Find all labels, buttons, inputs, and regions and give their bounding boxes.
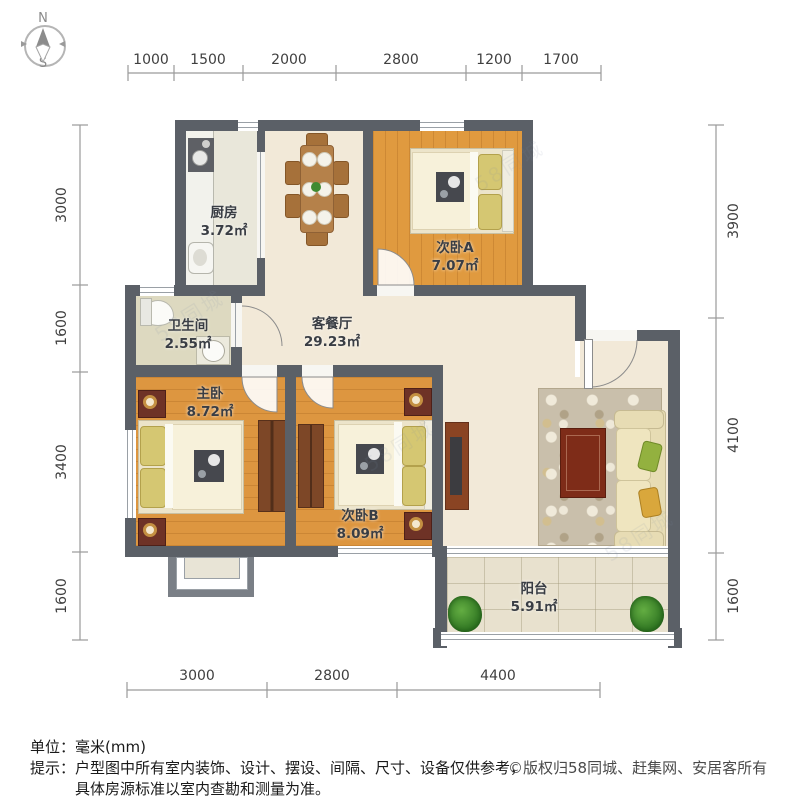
- master-label: 主卧 8.72㎡: [187, 386, 234, 421]
- cup: [360, 462, 368, 470]
- table-plate: [317, 152, 332, 167]
- bedroomA-pillow: [478, 194, 502, 230]
- dish: [368, 448, 380, 460]
- room-area: 7.07㎡: [432, 258, 479, 276]
- master-door-opening: [242, 365, 277, 377]
- bedroomB-nightstand: [404, 388, 432, 416]
- bathroom-door-opening: [231, 303, 242, 347]
- dining-chair: [285, 194, 301, 218]
- master-pillow: [140, 468, 166, 508]
- dim-right-2: 4100: [726, 417, 742, 453]
- kitchen-stove: [188, 138, 214, 172]
- lamp: [143, 395, 157, 409]
- wall: [432, 365, 443, 546]
- bedroomA-pillow: [478, 154, 502, 190]
- compass-south-label: S: [39, 56, 47, 71]
- table-plant: [311, 182, 321, 192]
- unit-note: 单位：毫米(mm): [30, 736, 146, 757]
- dimension-line-left: [72, 125, 88, 640]
- dim-left-3: 3400: [54, 444, 70, 480]
- sink-bowl: [193, 249, 207, 266]
- lamp: [409, 517, 423, 531]
- room-area: 8.72㎡: [187, 404, 234, 422]
- master-nightstand: [138, 390, 166, 418]
- dimension-line-right: [708, 125, 724, 640]
- room-name: 主卧: [197, 386, 224, 402]
- dim-bottom-2: 2800: [314, 668, 350, 684]
- room-name: 次卧B: [341, 508, 378, 524]
- dish: [448, 176, 460, 188]
- room-area: 8.09㎡: [337, 526, 384, 544]
- dish: [208, 454, 220, 466]
- room-name: 阳台: [521, 581, 548, 597]
- wall: [285, 377, 296, 546]
- bedroomB-pillow: [402, 426, 426, 466]
- tv-screen: [450, 437, 462, 495]
- kitchen-window: [238, 120, 258, 131]
- lamp: [409, 393, 423, 407]
- bedroomB-wardrobe: [298, 424, 324, 508]
- dim-top-3: 2000: [271, 52, 307, 68]
- bedroomB-door-opening: [302, 365, 333, 377]
- cup: [440, 190, 448, 198]
- balcony-plant: [630, 596, 664, 632]
- coffee-table: [560, 428, 606, 498]
- master-wardrobe: [258, 420, 286, 512]
- bedroomA-headboard: [502, 150, 514, 232]
- bedroomB-nightstand: [404, 512, 432, 540]
- entry-door-leaf: [584, 339, 593, 389]
- dining-chair: [285, 161, 301, 185]
- dim-left-1: 3000: [54, 187, 70, 223]
- floorplan-canvas: N S 1000 1500 2000 2800 1200 1700 3000 2…: [0, 0, 800, 800]
- dim-left-4: 1600: [54, 578, 70, 614]
- dim-top-2: 1500: [190, 52, 226, 68]
- stove-burner: [192, 150, 208, 166]
- master-window: [125, 430, 136, 518]
- room-name: 卫生间: [168, 318, 209, 334]
- dim-top-5: 1200: [476, 52, 512, 68]
- bedroomB-pillow: [402, 466, 426, 506]
- dim-top-4: 2800: [383, 52, 419, 68]
- room-area: 3.72㎡: [201, 223, 248, 241]
- sofa-armrest: [614, 410, 664, 429]
- dim-bottom-1: 3000: [179, 668, 215, 684]
- room-area: 2.55㎡: [165, 336, 212, 354]
- bedroomB-blanket: [356, 444, 384, 474]
- room-area: 29.23㎡: [304, 334, 360, 352]
- tip-label: 提示：: [30, 757, 75, 778]
- master-nightstand: [138, 518, 166, 546]
- tip-line1: 户型图中所有室内装饰、设计、摆设、间隔、尺寸、设备仅供参考，: [75, 757, 525, 778]
- stove-dish: [202, 140, 210, 148]
- bedroomA-window: [420, 120, 464, 131]
- bedroomB-label: 次卧B 8.09㎡: [337, 508, 384, 543]
- kitchen-label: 厨房 3.72㎡: [201, 205, 248, 240]
- kitchen-sink: [188, 242, 214, 274]
- room-name: 厨房: [211, 205, 238, 221]
- bedroomA-label: 次卧A 7.07㎡: [432, 240, 479, 275]
- master-blanket: [194, 450, 224, 482]
- dim-top-1: 1000: [133, 52, 169, 68]
- dim-bottom-3: 4400: [480, 668, 516, 684]
- bedroomA-blanket: [436, 172, 464, 202]
- master-pillow: [140, 426, 166, 466]
- tip-line2: 具体房源标准以室内查勘和测量为准。: [75, 778, 330, 799]
- table-plate: [302, 152, 317, 167]
- room-name: 次卧A: [436, 240, 473, 256]
- toilet-tank: [140, 298, 152, 326]
- dimension-line-bottom: [127, 682, 600, 698]
- bay-window-inner: [184, 557, 240, 579]
- dining-chair: [333, 194, 349, 218]
- kitchen-sliding-door: [257, 152, 265, 258]
- table-plate: [302, 210, 317, 225]
- balcony-railing: [441, 632, 674, 646]
- bedroomA-sheet: [470, 152, 478, 228]
- tv-cabinet: [445, 422, 469, 510]
- bedroomB-sheet: [394, 422, 402, 506]
- copyright-note: ©版权归58同城、赶集网、安居客所有: [508, 757, 767, 778]
- sofa: [614, 410, 664, 548]
- dim-left-2: 1600: [54, 310, 70, 346]
- dining-chair: [333, 161, 349, 185]
- wall: [363, 131, 373, 285]
- wall: [522, 120, 533, 296]
- wall: [175, 120, 186, 296]
- bedroomB-window: [338, 546, 432, 557]
- room-area: 5.91㎡: [511, 599, 558, 617]
- lamp: [143, 523, 157, 537]
- balcony-plant: [448, 596, 482, 632]
- bathroom-window: [140, 285, 174, 296]
- dim-top-6: 1700: [543, 52, 579, 68]
- table-plate: [317, 210, 332, 225]
- entry-door-opening: [586, 330, 637, 341]
- bathroom-label: 卫生间 2.55㎡: [165, 318, 212, 353]
- coffee-table-inlay: [566, 435, 600, 491]
- balcony-label: 阳台 5.91㎡: [511, 581, 558, 616]
- dim-right-1: 3900: [726, 203, 742, 239]
- room-name: 客餐厅: [312, 316, 353, 332]
- wall: [668, 330, 680, 557]
- balcony-sliding-door: [447, 546, 668, 557]
- dim-right-3: 1600: [726, 578, 742, 614]
- wall: [175, 120, 533, 131]
- compass-north-label: N: [38, 11, 48, 26]
- entry-floor: [580, 341, 668, 377]
- bedroomA-door-opening: [377, 285, 414, 296]
- master-sheet: [165, 424, 173, 508]
- cup: [198, 470, 206, 478]
- living-label: 客餐厅 29.23㎡: [304, 316, 360, 351]
